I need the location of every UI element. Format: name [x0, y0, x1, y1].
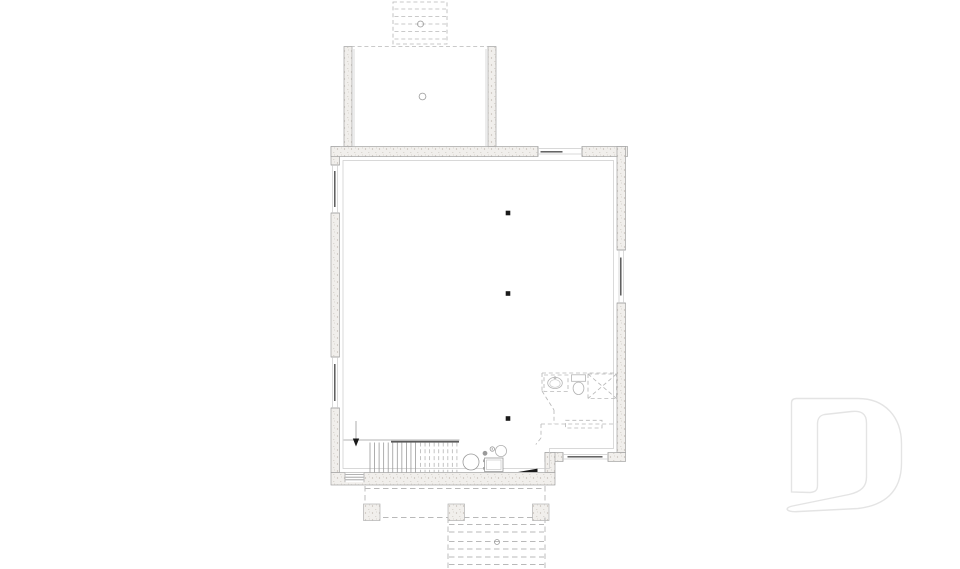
bottom-wall-window: [345, 473, 364, 482]
future-bathroom: [536, 373, 617, 445]
sump-pit: [483, 451, 488, 456]
floor-plan-drawing: [0, 0, 960, 569]
basement-window-top: [538, 147, 582, 157]
water-heater: [463, 454, 479, 470]
stair-header: [391, 441, 459, 443]
basement-window-left-2: [331, 357, 340, 408]
basement-stairs: [344, 421, 460, 473]
basement-window-bottom: [563, 453, 608, 462]
garage-post: [419, 93, 426, 100]
steel-column: [506, 211, 511, 216]
builder-watermark-d-logo: [787, 399, 901, 512]
stair-direction-arrow: [353, 421, 359, 447]
beam-pocket: [518, 469, 538, 472]
furnace: [483, 458, 503, 472]
deck-pier: [533, 504, 550, 521]
interior-face-line: [343, 161, 614, 469]
basement-window-right: [617, 250, 626, 303]
floor-plan-canvas: [0, 0, 960, 569]
deck-above: [364, 486, 550, 569]
deck-steps: [448, 518, 545, 569]
foundation-walls: [331, 147, 628, 486]
floor-drain: [490, 447, 494, 451]
utility-equipment: [463, 445, 538, 472]
garage-foundation: [344, 47, 496, 147]
drain-ring: [495, 445, 506, 456]
toilet: [572, 375, 586, 395]
steel-column: [506, 416, 511, 421]
step-post: [495, 540, 500, 545]
top-stoop-steps: [393, 2, 447, 44]
deck-pier: [448, 504, 465, 521]
steel-column: [506, 291, 511, 296]
shower: [588, 374, 617, 399]
basement-window-left-1: [331, 165, 340, 213]
vanity-sink: [544, 375, 568, 392]
deck-pier: [364, 504, 381, 521]
